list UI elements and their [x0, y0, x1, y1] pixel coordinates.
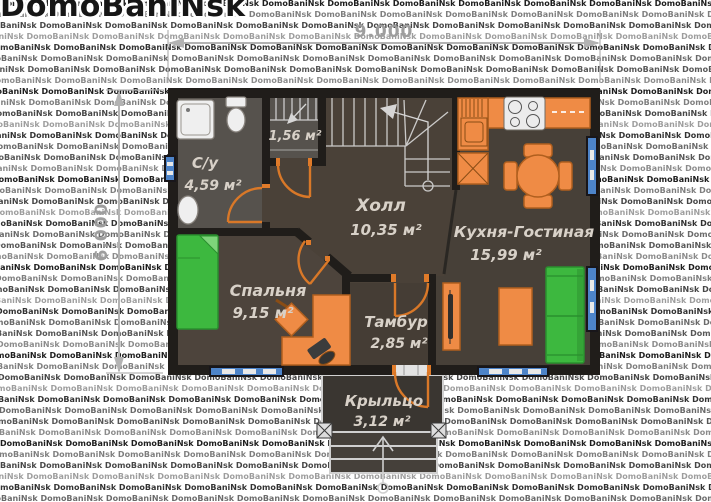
toilet-icon — [226, 97, 246, 132]
porch-post-icon — [431, 423, 446, 438]
room-area-kitchen: 15,99 м² — [470, 246, 542, 264]
room-area-bedroom: 9,15 м² — [232, 304, 293, 322]
dimension-left: 6.000 — [92, 90, 163, 373]
room-area-su: 4,59 м² — [184, 178, 243, 194]
room-area-tambour: 2,85 м² — [371, 336, 429, 352]
room-area-closet: 1,56 м² — [269, 129, 322, 144]
room-label-bedroom: Спальня — [230, 281, 307, 300]
room-label-hall: Холл — [355, 196, 406, 216]
floor-plan-image: DomoBaniNsk DomoBaniNsk DomoBaniNsk Domo… — [0, 0, 711, 502]
room-closet-floor — [270, 98, 318, 158]
tv-cabinet — [443, 283, 460, 350]
window-bedroom-bottom — [209, 366, 284, 377]
room-label-tambour: Тамбур — [364, 313, 428, 331]
window-kitchen-right-upper — [586, 136, 598, 196]
sofa — [546, 267, 584, 363]
dimension-width-label: 9.000 — [355, 22, 414, 42]
window-kitchen-right-lower — [586, 266, 598, 332]
room-label-su: С/у — [192, 154, 219, 172]
porch-post-icon — [317, 423, 332, 438]
shower-icon — [177, 100, 214, 139]
window-kitchen-bottom — [477, 366, 549, 377]
room-label-porch: Крыльцо — [345, 392, 423, 410]
floor-plan: 9.000 6.000 — [0, 0, 711, 502]
sink-icon — [177, 196, 198, 224]
window-bathroom-left — [164, 155, 176, 182]
coffee-table — [499, 288, 532, 345]
bed — [177, 235, 218, 329]
dimension-height-label: 6.000 — [92, 203, 112, 262]
stove-icon — [504, 97, 545, 130]
room-area-porch: 3,12 м² — [354, 414, 412, 430]
room-area-hall: 10,35 м² — [350, 221, 422, 239]
room-label-kitchen: Кухня-Гостиная — [454, 223, 595, 241]
entrance-opening — [395, 365, 428, 375]
kitchen-cabinet-icon — [458, 153, 488, 184]
dimension-top: 9.000 — [168, 22, 600, 83]
